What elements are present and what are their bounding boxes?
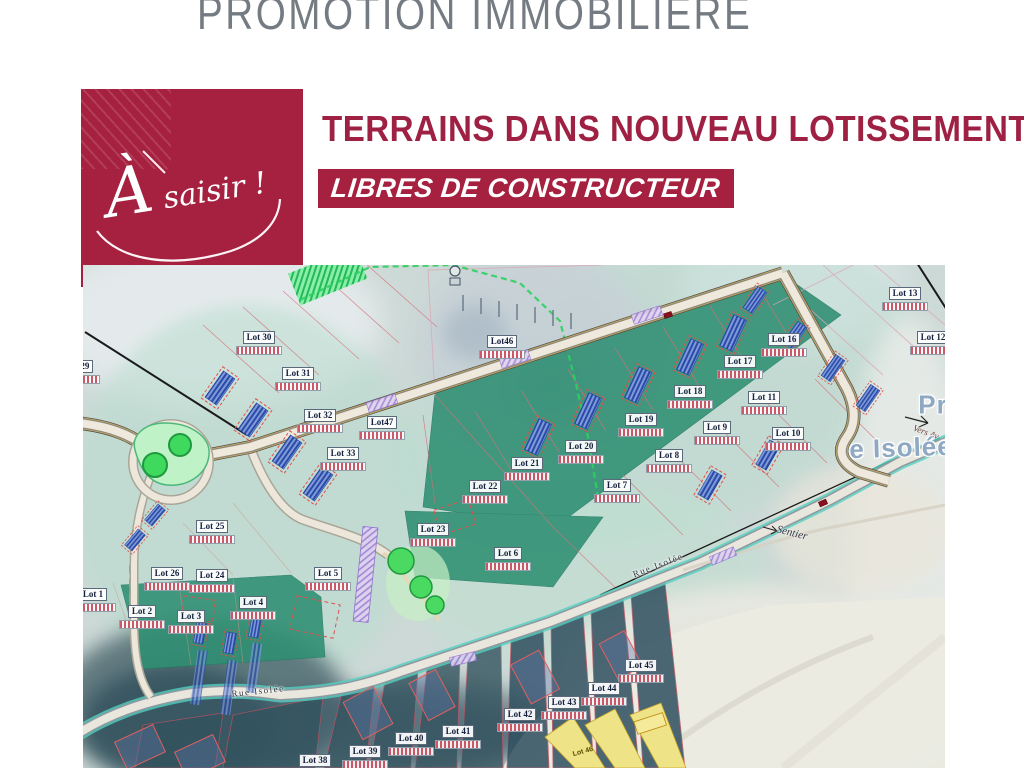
lot-number: Lot 30 (243, 331, 276, 344)
lot-label: Lot 25 (189, 516, 235, 544)
lot-area-text (485, 562, 531, 571)
lot-label: Lot 7 (594, 475, 640, 503)
lot-number: Lot 13 (889, 287, 922, 300)
lot-number: Lot 2 (128, 605, 156, 618)
lot-number: Lot 20 (565, 440, 598, 453)
lot-label: Lot 3 (168, 606, 214, 634)
lot-label: Lot 38 (292, 750, 338, 768)
lot-label: Lot 32 (297, 405, 343, 433)
lot-area-text (275, 382, 321, 391)
lot-number: Lot 5 (314, 567, 342, 580)
lot-label: Lot 5 (305, 563, 351, 591)
lot-label: Lot 42 (497, 704, 543, 732)
lot-label: Lot 43 (541, 692, 587, 720)
lot-area-text (882, 302, 928, 311)
lot-label: Lot 44 (581, 678, 627, 706)
lot-label: Lot 17 (717, 351, 763, 379)
lot-number: Lot47 (367, 416, 398, 429)
lot-area-text (479, 350, 525, 359)
lot-number: Lot 41 (442, 725, 475, 738)
lot-label: Lot 2 (119, 601, 165, 629)
lot-label: Lot 21 (504, 453, 550, 481)
lot-area-text (618, 428, 664, 437)
lot-number: Lot 4 (239, 596, 267, 609)
lot-area-text (410, 538, 456, 547)
lot-area-text (189, 535, 235, 544)
page-title: PROMOTION IMMOBILIÈRE (197, 0, 752, 40)
lot-number: Lot 11 (748, 391, 780, 404)
lot-number: Lot 24 (196, 569, 229, 582)
lot-number: Lot 39 (349, 745, 382, 758)
lot-label: Lot 33 (320, 443, 366, 471)
lot-label: Lot 9 (694, 417, 740, 445)
lot-number: Lot 1 (83, 588, 107, 601)
lot-number: Lot 21 (511, 457, 544, 470)
lot-area-text (541, 711, 587, 720)
lot-label: Lot 18 (667, 381, 713, 409)
lot-area-text (320, 462, 366, 471)
lot-number: Lot 45 (625, 659, 658, 672)
lot-area-text (581, 697, 627, 706)
lot-number: Lot 17 (724, 355, 757, 368)
lot-label: Lot 29 (83, 356, 100, 384)
lot-number: Lot 9 (703, 421, 731, 434)
lot-area-text (236, 346, 282, 355)
lot-area-text (144, 582, 190, 591)
lot-area-text (504, 472, 550, 481)
lot-label: Lot 12 (910, 327, 945, 355)
lot-number: Lot 7 (603, 479, 631, 492)
lot-area-text (594, 494, 640, 503)
banner-text: LIBRES DE CONSTRUCTEUR (329, 173, 721, 204)
lot-number: Lot 29 (83, 360, 93, 373)
lot-label: Lot 41 (435, 721, 481, 749)
lot-label: Lot 31 (275, 363, 321, 391)
lot-label: Lot 6 (485, 543, 531, 571)
lot-number: Lot 42 (504, 708, 537, 721)
lot-area-text (462, 495, 508, 504)
signature-swash-icon (81, 89, 303, 287)
lot-area-text (388, 747, 434, 756)
lot-label: Lot 26 (144, 563, 190, 591)
lot-label: Lot 13 (882, 283, 928, 311)
lot-label: Lot 24 (189, 565, 235, 593)
lot-number: Lot 3 (177, 610, 205, 623)
lot-area-text (694, 436, 740, 445)
a-saisir-badge: À saisir ! (81, 89, 303, 287)
lot-label: Lot 10 (765, 423, 811, 451)
lot-area-text (910, 346, 945, 355)
lot-area-text (558, 455, 604, 464)
lot-number: Lot46 (487, 335, 518, 348)
lot-number: Lot 32 (304, 409, 337, 422)
lot-area-text (359, 431, 405, 440)
lot-number: Lot 38 (299, 754, 332, 767)
lot-area-text (497, 723, 543, 732)
lot-area-text (83, 375, 100, 384)
promo-page: PROMOTION IMMOBILIÈRE À saisir ! TERRAIN… (0, 0, 1024, 768)
lot-area-text (305, 582, 351, 591)
lot-label: Lot 4 (230, 592, 276, 620)
lot-number: Lot 44 (588, 682, 621, 695)
lot-area-text (646, 464, 692, 473)
lot-label: Lot 30 (236, 327, 282, 355)
lot-number: Lot 33 (327, 447, 360, 460)
lot-area-text (741, 406, 787, 415)
lot-label: Lot 22 (462, 476, 508, 504)
lot-area-text (83, 603, 116, 612)
lot-label: Lot 16 (761, 329, 807, 357)
lot-number: Lot 22 (469, 480, 502, 493)
lot-label: Lot 19 (618, 409, 664, 437)
lot-number: Lot 18 (674, 385, 707, 398)
lot-area-text (230, 611, 276, 620)
lot-area-text (667, 400, 713, 409)
map-text-label: e Isolée (849, 431, 945, 466)
lot-area-text (342, 760, 388, 768)
lot-label: Lot 8 (646, 445, 692, 473)
lot-number: Lot 10 (772, 427, 805, 440)
lot-number: Lot 40 (395, 732, 428, 745)
lot-area-text (765, 442, 811, 451)
lot-label: Lot 1 (83, 584, 116, 612)
lot-number: Lot 19 (625, 413, 658, 426)
lot-area-text (761, 348, 807, 357)
lot-number: Lot 31 (282, 367, 315, 380)
lot-number: Lot 8 (655, 449, 683, 462)
lot-number: Lot 6 (494, 547, 522, 560)
lot-label: Lot46 (479, 331, 525, 359)
lot-number: Lot 16 (768, 333, 801, 346)
lot-label: Lot 39 (342, 741, 388, 768)
site-map: Lot 29Lot 30Lot 31Lot 32Lot 33Lot46Lot47… (83, 265, 945, 768)
headline: TERRAINS DANS NOUVEAU LOTISSEMENT (322, 108, 1024, 150)
lot-number: Lot 23 (417, 523, 450, 536)
lot-area-text (189, 584, 235, 593)
lot-label: Lot 23 (410, 519, 456, 547)
lot-label: Lot 20 (558, 436, 604, 464)
lot-area-text (717, 370, 763, 379)
lot-area-text (119, 620, 165, 629)
lot-label: Lot 11 (741, 387, 787, 415)
lot-number: Lot 12 (917, 331, 945, 344)
lot-label: Lot 40 (388, 728, 434, 756)
lot-number: Lot 43 (548, 696, 581, 709)
lot-area-text (297, 424, 343, 433)
map-text-label: Pr (918, 390, 945, 421)
banner: LIBRES DE CONSTRUCTEUR (318, 169, 734, 208)
lot-number: Lot 26 (151, 567, 184, 580)
lot-number: Lot 25 (196, 520, 229, 533)
lot-area-text (435, 740, 481, 749)
lot-label: Lot47 (359, 412, 405, 440)
lot-area-text (168, 625, 214, 634)
